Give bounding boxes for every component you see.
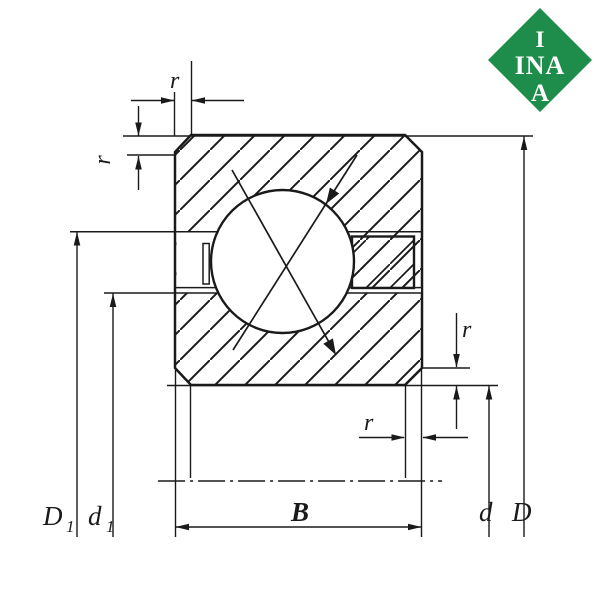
filling-plug [352, 237, 414, 289]
arrowhead [74, 232, 81, 246]
label-d1: d [88, 501, 102, 531]
label-outer-D: D [511, 497, 532, 527]
arrowhead [192, 97, 206, 104]
arrowhead [110, 294, 117, 308]
label-r-bottom: r [364, 410, 374, 436]
ina-logo: I INA A [488, 8, 592, 112]
label-r-left: r [90, 155, 116, 165]
bearing-cross-section-drawing: r r r r B D 1 d 1 d D I INA A [0, 0, 600, 600]
label-r-top: r [170, 68, 180, 94]
arrowhead [135, 123, 142, 137]
label-r-right: r [462, 317, 472, 343]
bearing-drawing-page: r r r r B D 1 d 1 d D I INA A [0, 0, 600, 600]
arrowhead [135, 156, 142, 170]
arrowhead [423, 434, 437, 441]
arrowhead [408, 524, 422, 531]
arrowhead [486, 386, 493, 400]
arrowhead [453, 386, 460, 400]
arrowhead [161, 97, 175, 104]
label-bore-d: d [479, 497, 493, 527]
logo-text-middle: INA [515, 51, 566, 80]
dimension-r-left [135, 106, 142, 190]
arrowhead [453, 354, 460, 368]
label-d1-subscript: 1 [106, 517, 115, 536]
dimension-r-top [131, 97, 244, 104]
logo-text-bottom: A [531, 80, 549, 107]
dimension-r-bottom [359, 434, 468, 441]
arrowhead [521, 137, 528, 151]
arrowhead [392, 434, 406, 441]
arrowhead [176, 524, 190, 531]
label-D1: D [42, 501, 63, 531]
split-joint-left [203, 244, 209, 285]
label-D1-subscript: 1 [66, 517, 75, 536]
ball [211, 190, 354, 333]
label-width-B: B [290, 497, 309, 527]
dimension-r-right [453, 313, 460, 429]
drawing-root [70, 61, 533, 537]
logo-text-top: I [536, 27, 545, 52]
